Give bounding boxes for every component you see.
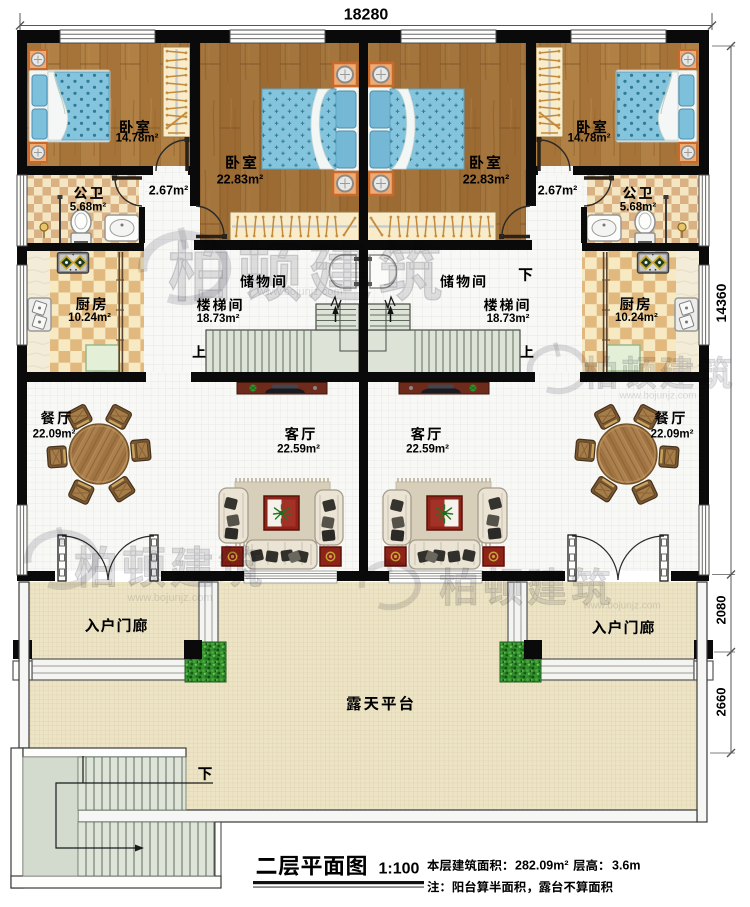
- svg-text:18.73m²: 18.73m²: [197, 313, 240, 325]
- svg-text:22.09m²: 22.09m²: [651, 429, 694, 441]
- svg-text:2.67m²: 2.67m²: [149, 184, 189, 198]
- svg-text:2660: 2660: [714, 688, 729, 717]
- svg-text:22.59m²: 22.59m²: [277, 444, 320, 456]
- svg-text:18280: 18280: [344, 6, 389, 23]
- svg-text:3.6m: 3.6m: [612, 859, 641, 873]
- svg-text:www.bojunjz.com: www.bojunjz.com: [257, 286, 343, 298]
- svg-text:www.bojunjz.com: www.bojunjz.com: [618, 391, 696, 402]
- svg-text:14360: 14360: [713, 283, 729, 322]
- svg-text:282.09m²: 282.09m²: [515, 859, 569, 873]
- svg-text:10.24m²: 10.24m²: [615, 312, 658, 324]
- svg-text:10.24m²: 10.24m²: [68, 312, 111, 324]
- svg-text:2080: 2080: [714, 596, 729, 625]
- svg-text:22.09m²: 22.09m²: [33, 429, 76, 441]
- svg-text:14.78m²: 14.78m²: [116, 133, 159, 145]
- svg-text:22.83m²: 22.83m²: [463, 173, 510, 187]
- svg-text:18.73m²: 18.73m²: [487, 313, 530, 325]
- svg-text:1:100: 1:100: [379, 860, 420, 877]
- svg-text:www.bojunjz.com: www.bojunjz.com: [127, 592, 213, 604]
- svg-text:22.83m²: 22.83m²: [217, 173, 264, 187]
- svg-text:2.67m²: 2.67m²: [538, 184, 578, 198]
- svg-text:5.68m²: 5.68m²: [620, 202, 657, 214]
- svg-text:www.bojunjz.com: www.bojunjz.com: [582, 601, 660, 612]
- svg-text:5.68m²: 5.68m²: [70, 202, 107, 214]
- svg-text:14.78m²: 14.78m²: [568, 133, 611, 145]
- svg-text:22.59m²: 22.59m²: [406, 444, 449, 456]
